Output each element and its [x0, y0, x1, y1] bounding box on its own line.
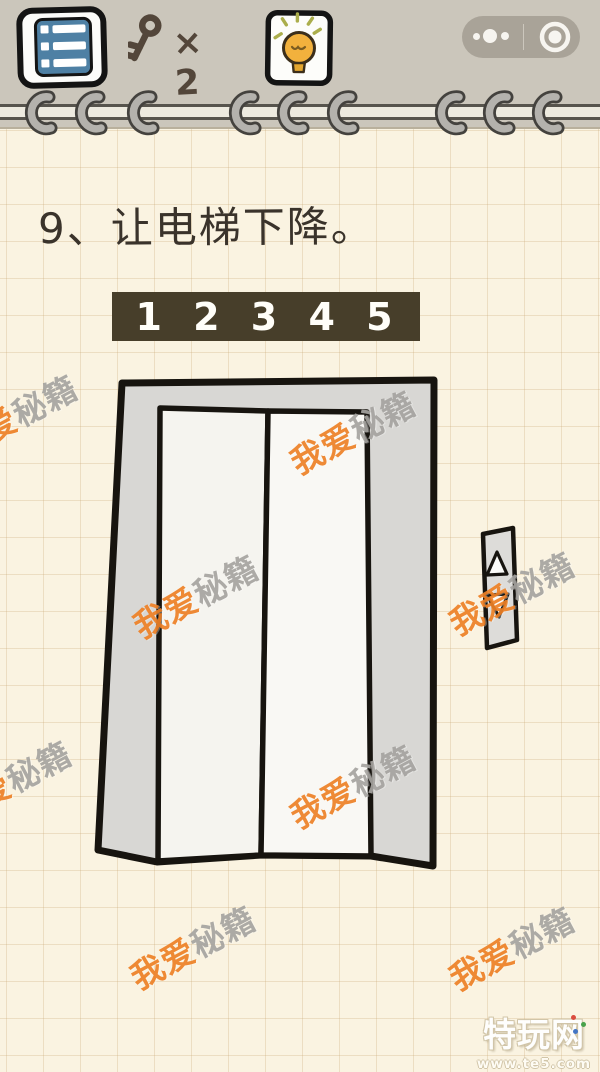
triangle-down-icon[interactable]	[487, 594, 508, 617]
logo-dot-green	[581, 1022, 586, 1027]
watermark-text: 我爱秘籍	[440, 894, 583, 1000]
watermark-text: 我爱秘籍	[281, 378, 424, 484]
site-logo: 特玩网 www.te5.com	[474, 1008, 594, 1072]
circle-button-icon	[538, 20, 572, 54]
watermark-orange-part: 我爱	[443, 932, 521, 998]
site-logo-url: www.te5.com	[474, 1056, 594, 1072]
watermark-orange-part: 我爱	[124, 931, 202, 997]
watermark-layer: 我爱秘籍我爱秘籍我爱秘籍我爱秘籍我爱秘籍我爱秘籍我爱秘籍我爱秘籍	[0, 0, 600, 1067]
key-count-label: × 2	[172, 20, 250, 104]
wechat-capsule	[462, 16, 580, 58]
watermark-gray-part: 秘籍	[344, 384, 422, 450]
list-menu-rows	[40, 24, 86, 67]
watermark-orange-part: 我爱	[0, 766, 18, 832]
watermark-text: 我爱秘籍	[0, 728, 79, 834]
elevator-frame	[98, 380, 434, 866]
elevator-call-panel[interactable]	[483, 528, 517, 648]
three-dots-icon	[473, 33, 480, 40]
elevator-drawing	[0, 0, 600, 1067]
watermark-orange-part: 我爱	[127, 580, 205, 646]
logo-dot-red	[571, 1015, 576, 1020]
floor-indicator: 1 2 3 4 5	[112, 292, 420, 341]
key-counter: × 2	[128, 14, 248, 78]
top-bar: × 2	[0, 0, 600, 129]
watermark-gray-part: 秘籍	[184, 899, 262, 965]
site-logo-name: 特玩网	[483, 1008, 585, 1056]
watermark-orange-part: 我爱	[284, 770, 362, 836]
watermark-gray-part: 秘籍	[503, 900, 581, 966]
triangle-up-icon[interactable]	[487, 552, 507, 575]
close-button[interactable]	[524, 16, 580, 58]
logo-dot-blue	[573, 1029, 578, 1034]
elevator-right-door[interactable]	[261, 411, 371, 856]
watermark-text: 我爱秘籍	[440, 539, 583, 645]
elevator-left-door[interactable]	[158, 408, 268, 861]
question-title: 9、让电梯下降。	[38, 193, 375, 256]
watermark-orange-part: 我爱	[0, 400, 24, 466]
watermark-gray-part: 秘籍	[0, 734, 78, 800]
watermark-gray-part: 秘籍	[503, 545, 581, 611]
watermark-text: 我爱秘籍	[124, 542, 267, 648]
watermark-orange-part: 我爱	[284, 416, 362, 482]
watermark-text: 我爱秘籍	[121, 893, 264, 999]
menu-button[interactable]	[15, 5, 109, 91]
watermark-text: 我爱秘籍	[0, 362, 85, 468]
watermark-gray-part: 秘籍	[187, 548, 265, 614]
wechat-mini-game-screen: { "topbar": { "menu_button": { "icon_nam…	[0, 0, 600, 1067]
more-button[interactable]	[462, 16, 523, 58]
floor-numbers: 1 2 3 4 5	[112, 292, 420, 342]
watermark-orange-part: 我爱	[443, 577, 521, 643]
hint-button[interactable]	[263, 6, 334, 89]
watermark-gray-part: 秘籍	[6, 368, 84, 434]
watermark-text: 我爱秘籍	[281, 732, 424, 838]
watermark-gray-part: 秘籍	[344, 738, 422, 804]
